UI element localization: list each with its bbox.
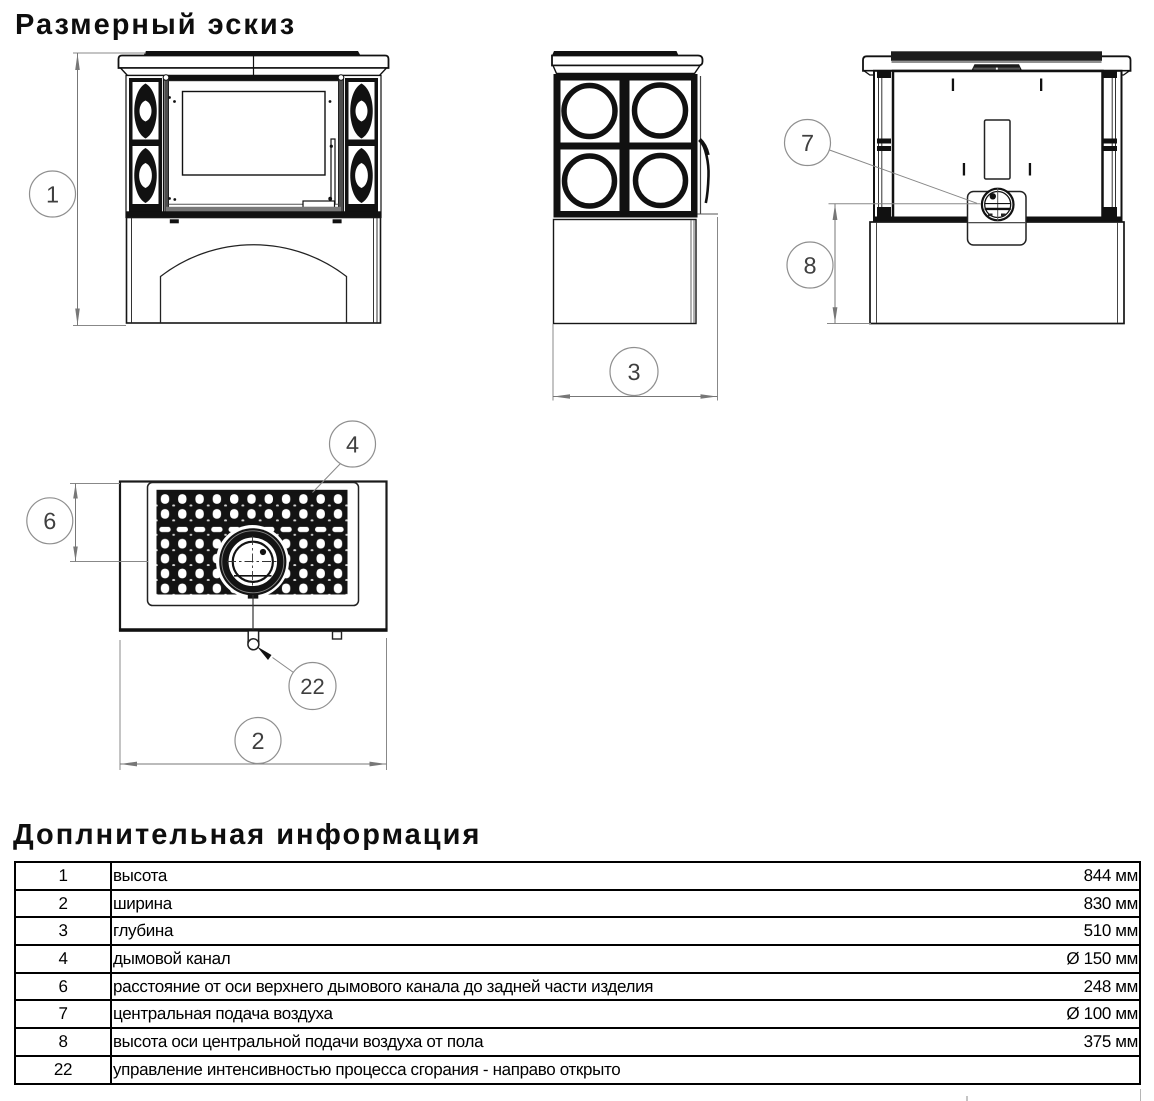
svg-text:22: 22: [300, 674, 324, 699]
svg-text:8: 8: [803, 252, 816, 278]
svg-text:6: 6: [43, 508, 56, 534]
svg-text:3: 3: [627, 359, 640, 385]
svg-text:4: 4: [346, 431, 359, 457]
svg-text:7: 7: [801, 130, 814, 156]
svg-text:1: 1: [46, 181, 59, 207]
svg-text:2: 2: [251, 728, 264, 754]
